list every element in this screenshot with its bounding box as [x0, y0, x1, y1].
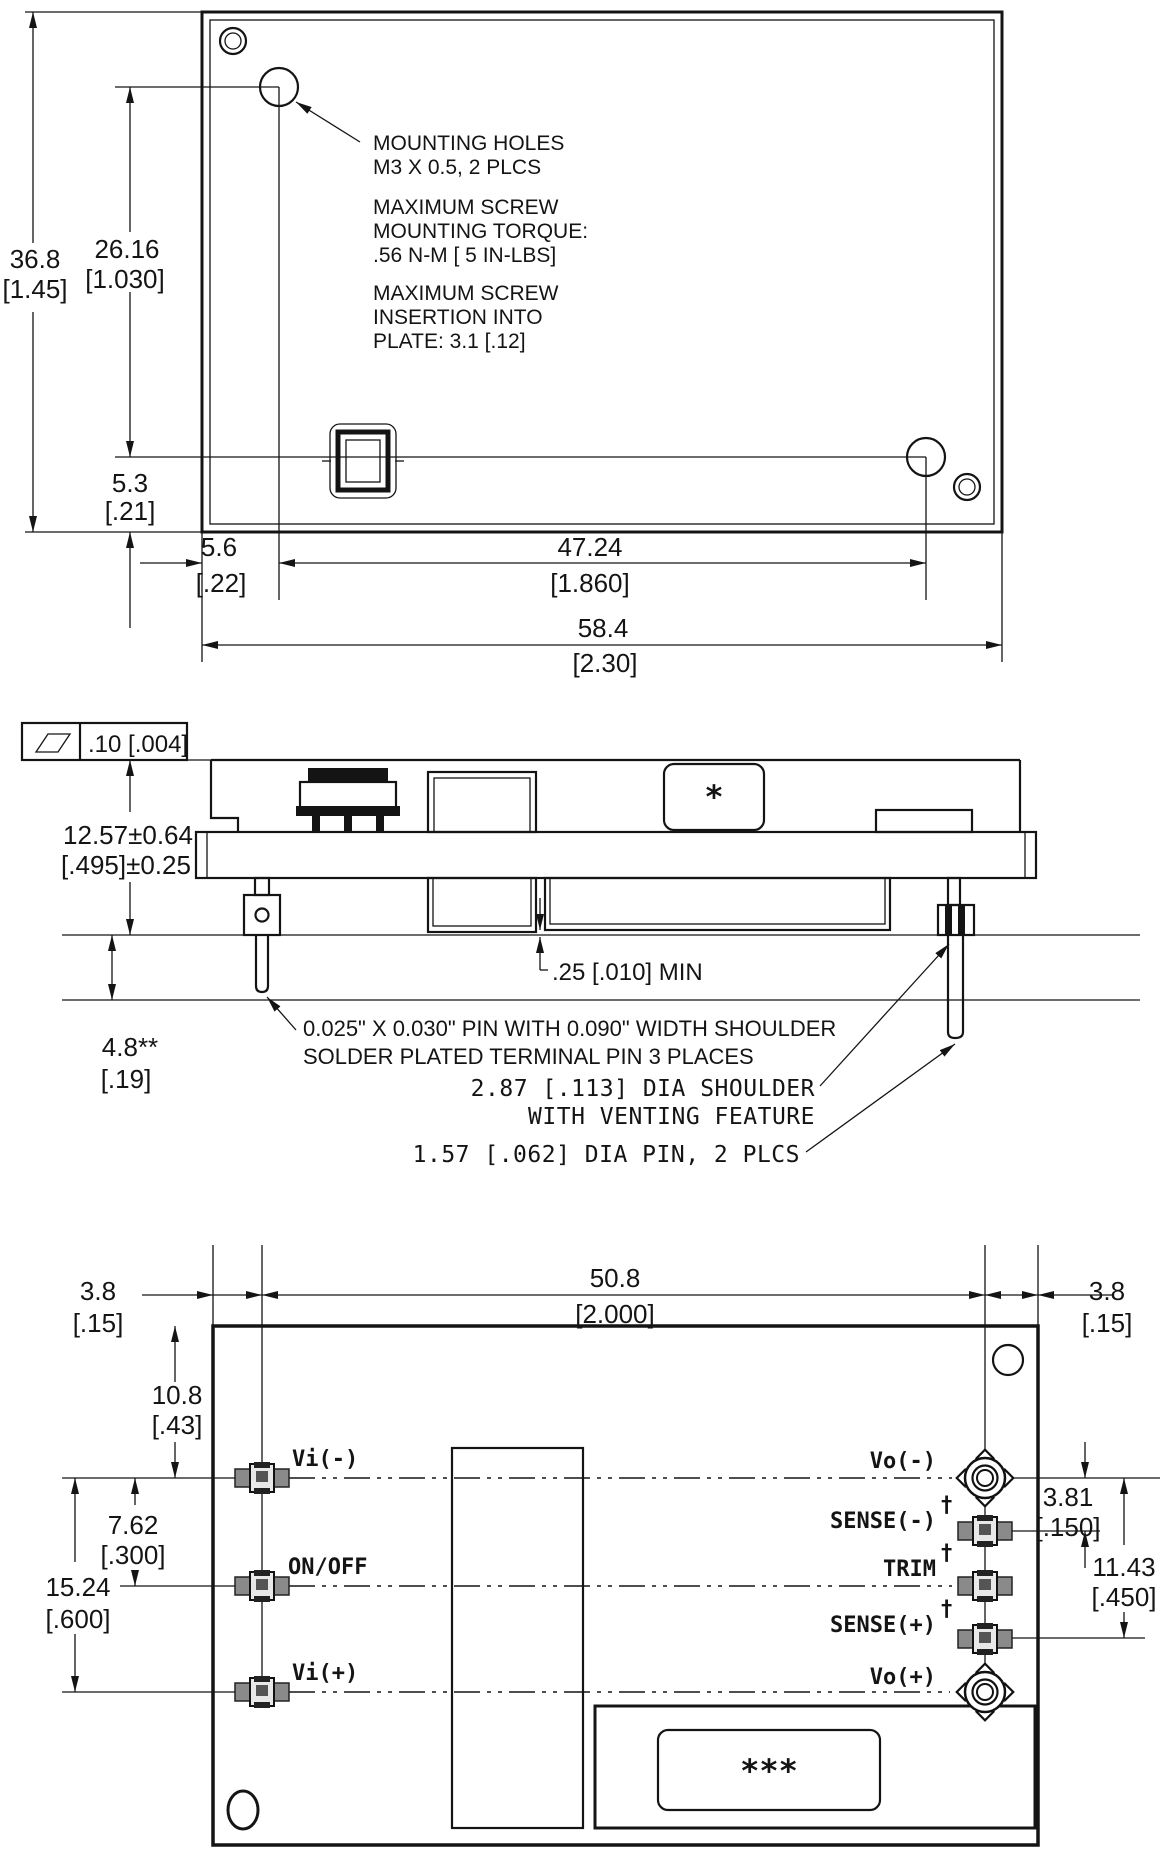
lower-component-frame-right: [545, 878, 890, 930]
leader-terminal-pin: [267, 997, 296, 1030]
flatness-symbol-icon: [36, 734, 70, 752]
lower-component-frame-left: [428, 878, 536, 932]
center-slot-feature: [452, 1448, 583, 1828]
pin-sense-plus: [958, 1623, 1012, 1655]
dim-side-height-mm: 12.57±0.64: [63, 820, 193, 850]
dim-hole-span-v-in: [1.030]: [85, 264, 165, 294]
note-dia-pin: 1.57 [.062] DIA PIN, 2 PLCS: [413, 1142, 800, 1168]
leader-shoulder: [820, 944, 949, 1086]
dim-text-side-view: 12.57±0.64 [.495]±0.25 4.8** [.19] .25 […: [61, 820, 836, 1168]
corner-hole-top-left: [220, 28, 246, 54]
baseplate-flange: [196, 832, 1036, 878]
flatness-control-frame: .10 [.004]: [22, 723, 211, 760]
dim-row-span-in: [.600]: [45, 1604, 110, 1634]
dim-width-mm: 58.4: [578, 613, 629, 643]
pin-vo-plus: [957, 1664, 1014, 1721]
dim-right-margin-in: [.15]: [1082, 1308, 1133, 1338]
notes-top-view: MOUNTING HOLES M3 X 0.5, 2 PLCS MAXIMUM …: [373, 132, 588, 353]
dim-left-margin-mm: 3.8: [80, 1276, 116, 1306]
dagger-sense-minus: †: [940, 1493, 953, 1518]
bottom-view: ***: [45, 1245, 1160, 1845]
dim-hole-span-h-mm: 47.24: [557, 532, 622, 562]
dagger-trim: †: [940, 1541, 953, 1566]
dim-pin-span-mm: 50.8: [590, 1263, 641, 1293]
pin-vo-minus: [957, 1450, 1014, 1507]
dim-sense-span-in: [.450]: [1091, 1582, 1156, 1612]
label-area-bottom-view: ***: [595, 1706, 1035, 1828]
label-window-feature: [322, 424, 404, 498]
transformer-component: [296, 768, 400, 832]
pin-label-vo-plus: Vo(+): [870, 1665, 936, 1690]
pin-label-sense-minus: SENSE(-): [830, 1509, 936, 1534]
top-view: 36.8 [1.45] 26.16 [1.030] 5.3 [.21] 5.6 …: [2, 12, 1002, 678]
leader-mounting-holes: [296, 102, 360, 142]
note-torque-1: MAXIMUM SCREW: [373, 196, 559, 219]
note-mounting-holes-2: M3 X 0.5, 2 PLCS: [373, 156, 541, 179]
dim-hole-span-h-in: [1.860]: [550, 568, 630, 598]
dim-right-margin-mm: 3.8: [1089, 1276, 1125, 1306]
pin-label-sense-plus: SENSE(+): [830, 1613, 936, 1638]
pin-sense-minus: [958, 1515, 1012, 1547]
note-terminal-pin-1: 0.025" X 0.030" PIN WITH 0.090" WIDTH SH…: [303, 1016, 836, 1041]
marker-triple-star: ***: [740, 1752, 798, 1790]
note-terminal-pin-2: SOLDER PLATED TERMINAL PIN 3 PLACES: [303, 1044, 754, 1069]
pin-trim: [958, 1570, 1012, 1602]
dim-top-offset-in: [.43]: [152, 1410, 203, 1440]
dim-edge-hole-in: [.22]: [196, 568, 247, 598]
dim-height-in: [1.45]: [2, 274, 67, 304]
dim-clearance-min: .25 [.010] MIN: [552, 959, 703, 986]
marker-single-star: *: [704, 778, 723, 816]
pin-label-vo-minus: Vo(-): [870, 1449, 936, 1474]
dim-pin-span-in: [2.000]: [575, 1299, 655, 1329]
dim-height-mm: 36.8: [10, 244, 61, 274]
dim-side-height-in: [.495]±0.25: [61, 850, 191, 880]
dim-edge-hole-mm: 5.6: [201, 532, 237, 562]
note-torque-2: MOUNTING TORQUE:: [373, 220, 588, 243]
side-view-body: *: [62, 760, 1140, 1038]
note-insertion-3: PLATE: 3.1 [.12]: [373, 330, 526, 353]
dim-width-in: [2.30]: [572, 648, 637, 678]
dim-row-pitch-in: [.300]: [100, 1540, 165, 1570]
dim-pin-length-in: [.19]: [101, 1064, 152, 1094]
pin-vi-plus: [235, 1676, 289, 1708]
leader-dia-pin: [806, 1044, 955, 1152]
upper-component-frame: [428, 772, 536, 832]
dim-sense-offset-mm: 3.81: [1043, 1482, 1094, 1512]
note-mounting-holes-1: MOUNTING HOLES: [373, 132, 564, 155]
dim-row-pitch-mm: 7.62: [108, 1510, 159, 1540]
corner-hole-bottom-left-bottom-view: [228, 1791, 258, 1829]
side-view: .10 [.004] *: [22, 723, 1140, 1168]
pin-label-vi-plus: Vi(+): [292, 1661, 358, 1686]
label-pad-side: *: [664, 764, 764, 830]
dim-hole-bottom-mm: 5.3: [112, 468, 148, 498]
dim-sense-span-mm: 11.43: [1092, 1552, 1155, 1582]
dim-hole-bottom-in: [.21]: [105, 496, 156, 526]
module-inner-outline: [210, 20, 994, 524]
pin-label-vi-minus: Vi(-): [292, 1447, 358, 1472]
note-insertion-1: MAXIMUM SCREW: [373, 282, 559, 305]
output-pin-side-right: [938, 878, 974, 1038]
note-insertion-2: INSERTION INTO: [373, 306, 543, 329]
pin-labels-bottom-view: Vi(-) ON/OFF Vi(+) Vo(-) SENSE(-) † TRIM…: [288, 1447, 953, 1690]
pin-vi-minus: [235, 1462, 289, 1494]
dim-top-offset-mm: 10.8: [152, 1380, 203, 1410]
note-shoulder-1: 2.87 [.113] DIA SHOULDER: [471, 1076, 815, 1102]
dim-pin-length-mm: 4.8**: [102, 1032, 158, 1062]
corner-hole-bottom-right: [954, 474, 980, 500]
right-ledge-component: [876, 810, 972, 832]
module-outline-top-view: [202, 12, 1002, 532]
note-torque-3: .56 N-M [ 5 IN-LBS]: [373, 244, 556, 267]
outline-drawing-svg: 36.8 [1.45] 26.16 [1.030] 5.3 [.21] 5.6 …: [0, 0, 1160, 1854]
pin-label-on-off: ON/OFF: [288, 1555, 367, 1580]
dim-row-span-mm: 15.24: [45, 1572, 110, 1602]
corner-hole-top-right-bottom-view: [993, 1345, 1023, 1375]
dim-hole-span-v-mm: 26.16: [94, 234, 159, 264]
pin-on-off: [235, 1570, 289, 1602]
flatness-value: .10 [.004]: [88, 731, 188, 758]
pin-label-trim: TRIM: [883, 1557, 936, 1582]
dim-left-margin-in: [.15]: [73, 1308, 124, 1338]
dagger-sense-plus: †: [940, 1597, 953, 1622]
note-shoulder-2: WITH VENTING FEATURE: [528, 1104, 815, 1130]
drawing-sheet: 36.8 [1.45] 26.16 [1.030] 5.3 [.21] 5.6 …: [0, 0, 1160, 1854]
dim-sense-offset-in: [.150]: [1035, 1512, 1100, 1542]
